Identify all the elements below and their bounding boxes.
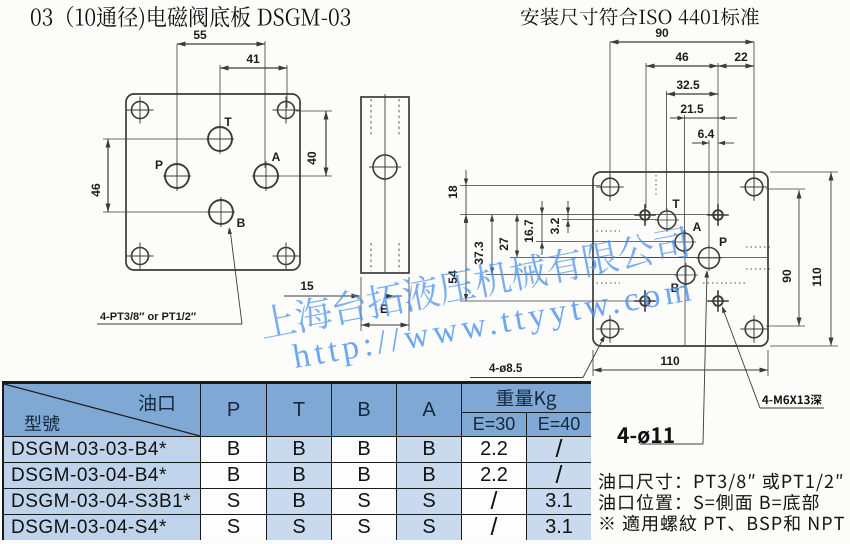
- svg-text:27: 27: [497, 237, 511, 251]
- svg-text:40: 40: [305, 151, 319, 165]
- svg-text:55: 55: [193, 28, 207, 42]
- svg-text:15: 15: [300, 279, 314, 293]
- svg-text:3.2: 3.2: [548, 217, 562, 234]
- svg-text:4-PT3/8″ or PT1/2″: 4-PT3/8″ or PT1/2″: [100, 311, 197, 323]
- svg-text:46: 46: [675, 50, 689, 64]
- svg-text:A: A: [272, 150, 281, 164]
- svg-text:18: 18: [446, 185, 460, 199]
- svg-text:B: B: [237, 216, 246, 230]
- svg-text:22: 22: [734, 50, 748, 64]
- svg-text:41: 41: [246, 52, 260, 66]
- svg-text:37.3: 37.3: [472, 241, 486, 265]
- svg-text:4-ø8.5: 4-ø8.5: [489, 363, 523, 375]
- svg-text:T: T: [672, 197, 680, 211]
- svg-text:T: T: [224, 115, 232, 129]
- svg-text:110: 110: [810, 267, 824, 287]
- svg-text:P: P: [719, 235, 727, 249]
- svg-text:16.7: 16.7: [522, 219, 536, 243]
- svg-text:6.4: 6.4: [698, 127, 715, 141]
- svg-text:90: 90: [780, 269, 794, 283]
- svg-text:32.5: 32.5: [676, 78, 700, 92]
- svg-text:46: 46: [89, 183, 103, 197]
- svg-text:P: P: [155, 158, 163, 172]
- svg-text:A: A: [693, 220, 702, 234]
- svg-text:90: 90: [655, 26, 669, 40]
- svg-text:110: 110: [660, 354, 680, 368]
- svg-text:21.5: 21.5: [680, 102, 704, 116]
